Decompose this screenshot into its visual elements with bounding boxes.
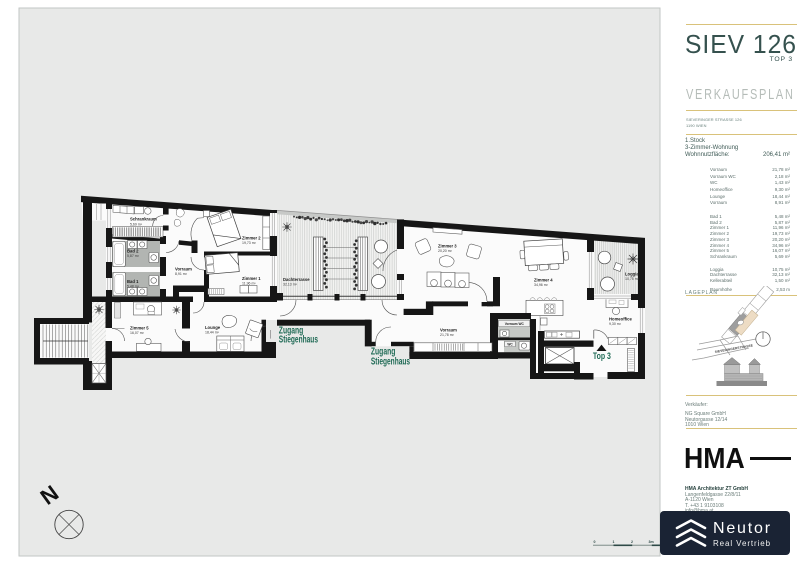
svg-text:19,73 m²: 19,73 m² — [242, 241, 257, 245]
svg-text:9,30 m²: 9,30 m² — [609, 322, 622, 326]
svg-text:5,87 m²: 5,87 m² — [127, 254, 140, 258]
svg-text:5,69 m²: 5,69 m² — [130, 222, 143, 226]
svg-text:11,96 m²: 11,96 m² — [242, 282, 256, 286]
svg-text:Loggia: Loggia — [625, 272, 639, 277]
svg-text:0: 0 — [594, 540, 596, 544]
svg-text:Bad 2: Bad 2 — [127, 249, 139, 254]
svg-text:5,48 m²: 5,48 m² — [127, 285, 140, 289]
svg-text:Zimmer 4: Zimmer 4 — [534, 278, 553, 283]
svg-text:3m: 3m — [649, 540, 654, 544]
svg-text:20,20 m²: 20,20 m² — [438, 249, 453, 253]
svg-text:WC: WC — [507, 343, 513, 347]
svg-text:Top 3: Top 3 — [593, 351, 611, 361]
svg-text:Zimmer 1: Zimmer 1 — [242, 276, 261, 281]
svg-text:Schrankraum: Schrankraum — [130, 217, 157, 222]
svg-text:1: 1 — [613, 540, 615, 544]
svg-text:2: 2 — [631, 540, 633, 544]
svg-text:Zimmer 5: Zimmer 5 — [130, 326, 149, 331]
svg-text:Zimmer 2: Zimmer 2 — [242, 236, 261, 241]
svg-text:Homeoffice: Homeoffice — [609, 317, 632, 322]
svg-text:Dachterrasse: Dachterrasse — [283, 277, 310, 282]
svg-text:10,75 m²: 10,75 m² — [625, 277, 640, 281]
svg-text:8,91 m²: 8,91 m² — [175, 272, 188, 276]
svg-text:32,13 m²: 32,13 m² — [283, 283, 298, 287]
svg-text:Stiegenhaus: Stiegenhaus — [279, 334, 318, 345]
svg-text:Bad 1: Bad 1 — [127, 279, 139, 284]
svg-text:21,78 m²: 21,78 m² — [440, 333, 455, 337]
svg-text:16,07 m²: 16,07 m² — [130, 331, 145, 335]
svg-text:34,96 m²: 34,96 m² — [534, 283, 549, 287]
svg-text:Vorraum: Vorraum — [440, 328, 457, 333]
svg-text:Vorraum: Vorraum — [175, 267, 192, 272]
svg-text:Vorraum WC: Vorraum WC — [505, 322, 525, 326]
svg-text:Stiegenhaus: Stiegenhaus — [371, 357, 410, 368]
svg-text:18,44 m²: 18,44 m² — [205, 331, 220, 335]
svg-text:Zimmer 3: Zimmer 3 — [438, 244, 457, 249]
svg-text:Lounge: Lounge — [205, 325, 221, 330]
